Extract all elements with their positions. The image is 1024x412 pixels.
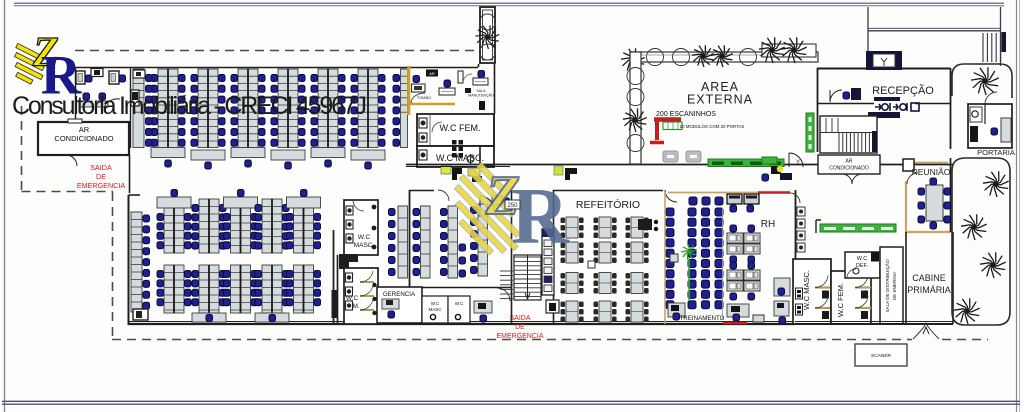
svg-text:SAIDA: SAIDA xyxy=(90,163,112,172)
svg-text:SAIDA: SAIDA xyxy=(509,315,530,322)
svg-text:REFEITÓRIO: REFEITÓRIO xyxy=(576,198,640,211)
svg-text:RECEPÇÃO: RECEPÇÃO xyxy=(872,84,934,97)
svg-text:SCANER: SCANER xyxy=(871,353,892,359)
svg-text:RH: RH xyxy=(761,219,775,230)
svg-text:PORTARIA: PORTARIA xyxy=(977,148,1015,157)
svg-text:TREINAMENTO: TREINAMENTO xyxy=(680,315,725,322)
svg-text:AR: AR xyxy=(429,71,435,76)
svg-text:MASC.: MASC. xyxy=(354,242,375,249)
svg-text:EMERGENCIA: EMERGENCIA xyxy=(496,333,543,340)
svg-text:TOMBO: TOMBO xyxy=(417,95,432,100)
svg-text:REUNIÃO: REUNIÃO xyxy=(912,167,951,177)
svg-text:CABINE: CABINE xyxy=(912,273,946,283)
svg-text:R: R xyxy=(511,173,570,261)
svg-text:DE: DE xyxy=(515,324,525,331)
svg-text:W.C: W.C xyxy=(431,301,440,306)
svg-text:MASC: MASC xyxy=(428,307,442,312)
svg-text:PRIMÁRIA: PRIMÁRIA xyxy=(907,285,951,295)
svg-text:W.C FEM.: W.C FEM. xyxy=(836,283,845,317)
svg-text:W.C: W.C xyxy=(857,256,867,262)
svg-text:GERENCIA: GERENCIA xyxy=(383,291,416,298)
svg-text:250: 250 xyxy=(507,203,518,209)
svg-text:AR: AR xyxy=(846,159,853,165)
svg-text:Consultoria Imobiliária - CREC: Consultoria Imobiliária - CRECI 45967J xyxy=(12,92,367,120)
svg-text:EMERGENCIA: EMERGENCIA xyxy=(77,181,126,190)
svg-text:W.C: W.C xyxy=(358,234,371,241)
svg-text:CONDICIONADO: CONDICIONADO xyxy=(829,166,869,172)
svg-text:W.C MASC.: W.C MASC. xyxy=(802,270,811,310)
svg-text:200 ESCANINHOS: 200 ESCANINHOS xyxy=(656,111,716,118)
svg-text:DE ENERGIA: DE ENERGIA xyxy=(892,271,897,300)
svg-text:MANUTENÇÃO: MANUTENÇÃO xyxy=(468,93,494,98)
svg-text:Y: Y xyxy=(796,160,800,166)
svg-text:EXTERNA: EXTERNA xyxy=(687,93,753,107)
svg-text:DE: DE xyxy=(96,172,106,181)
svg-text:CONDICIONADO: CONDICIONADO xyxy=(54,134,113,143)
svg-text:W.C: W.C xyxy=(455,301,464,306)
svg-text:SALA DE DISTRIBUIÇÃO: SALA DE DISTRIBUIÇÃO xyxy=(884,259,890,313)
svg-text:SALA: SALA xyxy=(476,89,486,93)
svg-text:W.C FEM.: W.C FEM. xyxy=(440,123,481,133)
svg-text:10 MODULOS COM 20 PORTAS: 10 MODULOS COM 20 PORTAS xyxy=(680,124,745,129)
svg-text:AR: AR xyxy=(79,125,90,134)
